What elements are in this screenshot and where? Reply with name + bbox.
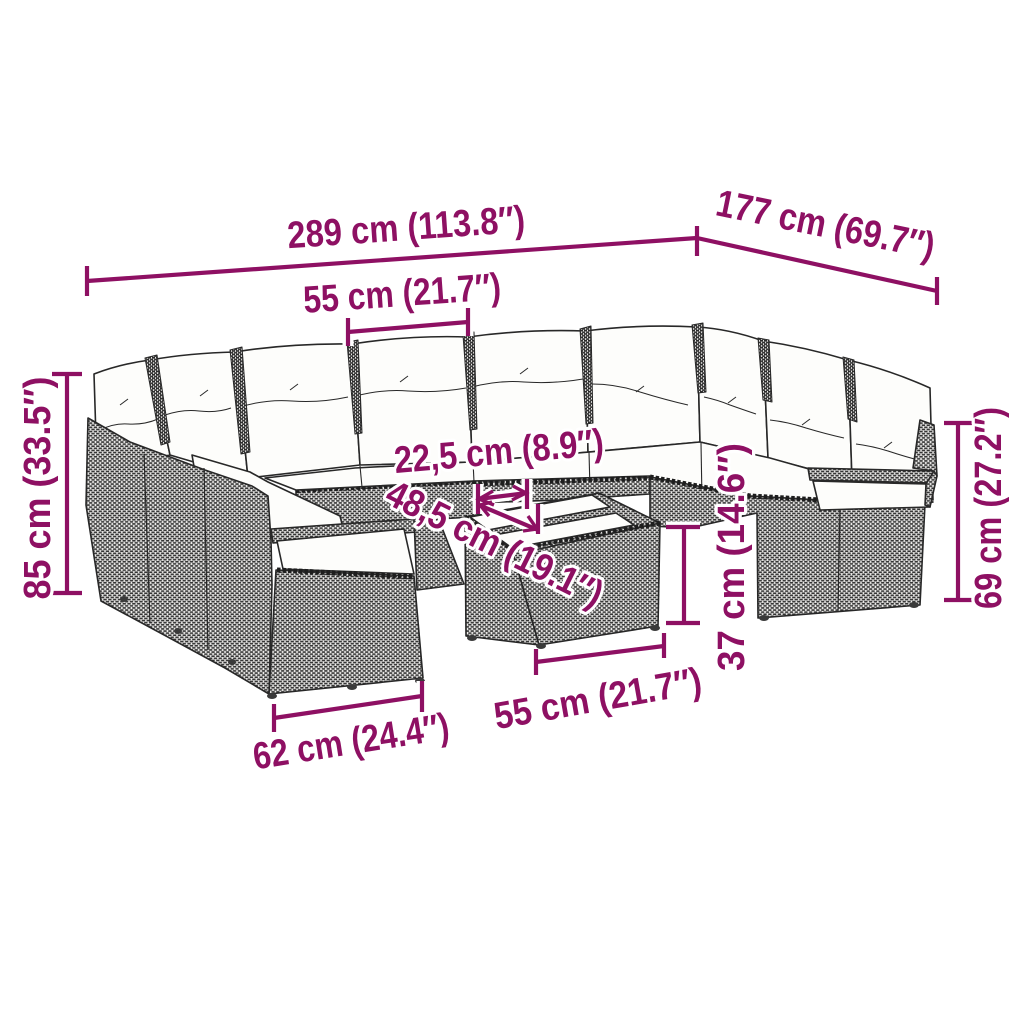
svg-text:37 cm (14.6″): 37 cm (14.6″) xyxy=(711,443,753,671)
svg-text:85 cm (33.5″): 85 cm (33.5″) xyxy=(17,377,59,600)
svg-text:69 cm (27.2″): 69 cm (27.2″) xyxy=(968,407,1010,609)
